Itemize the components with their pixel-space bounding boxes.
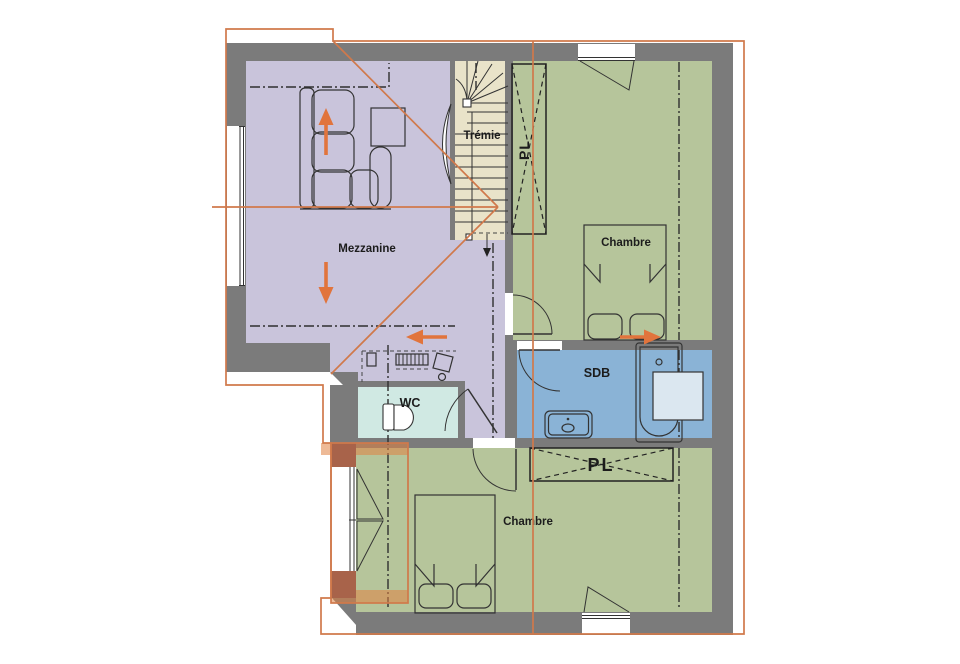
room-corridor	[465, 383, 505, 443]
label-pl-bottom: PL	[587, 455, 614, 475]
floor-plan-drawing: Mezzanine Trémie Chambre Chambre SDB WC …	[0, 0, 960, 664]
room-stairwell	[452, 61, 508, 240]
label-wc: WC	[400, 396, 421, 410]
label-chambre-top: Chambre	[601, 237, 651, 249]
wall-bottom	[356, 612, 733, 635]
wall-mezzanine-bottom	[226, 343, 330, 372]
label-mezzanine: Mezzanine	[338, 243, 396, 255]
window-left	[227, 126, 245, 286]
label-pl-top: PL	[516, 140, 532, 160]
door-opening-sdb	[517, 341, 562, 350]
floor-plan-page: Mezzanine Trémie Chambre Chambre SDB WC …	[0, 0, 960, 664]
wall-wc-top	[343, 381, 465, 387]
shower-tray	[653, 372, 703, 420]
room-chambre-bottom	[356, 448, 712, 612]
label-chambre-bottom: Chambre	[503, 516, 553, 528]
dormer-wall-top	[331, 443, 356, 467]
window-top	[578, 44, 635, 61]
door-opening-chambre-bottom	[473, 438, 515, 448]
label-sdb: SDB	[584, 366, 610, 380]
wall-corridor-sdb	[505, 343, 517, 443]
stair-newel-post	[463, 99, 471, 107]
door-opening-chambre-top	[505, 293, 513, 335]
wall-top	[226, 43, 733, 61]
wall-right	[712, 43, 733, 635]
label-tremie: Trémie	[463, 130, 500, 142]
room-chambre-top	[512, 61, 712, 343]
dormer-wall-bottom	[331, 571, 356, 598]
window-bottom	[582, 613, 630, 634]
wall-stairs-left	[450, 61, 455, 240]
